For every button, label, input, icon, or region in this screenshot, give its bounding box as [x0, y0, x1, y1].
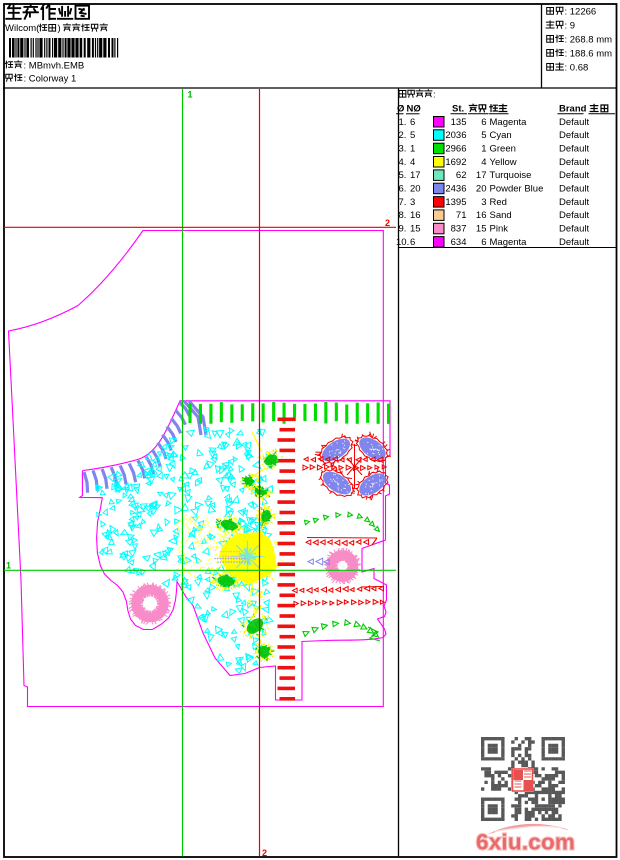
- svg-text:5: 5: [481, 130, 486, 141]
- svg-text:5.: 5.: [399, 170, 407, 181]
- svg-text:Magenta: Magenta: [490, 237, 528, 248]
- svg-text:1: 1: [410, 144, 415, 155]
- svg-text:Green: Green: [490, 144, 516, 155]
- svg-text:Default: Default: [559, 210, 589, 221]
- svg-text:Brand: Brand: [559, 104, 587, 115]
- svg-text:: 188.6 mm: : 188.6 mm: [565, 48, 613, 59]
- svg-text:15: 15: [410, 224, 421, 235]
- svg-text:17: 17: [476, 170, 487, 181]
- svg-text:: 268.8 mm: : 268.8 mm: [565, 34, 613, 45]
- svg-text:16: 16: [410, 210, 421, 221]
- svg-text:Yellow: Yellow: [490, 157, 517, 168]
- svg-text:Default: Default: [559, 224, 589, 235]
- svg-text:Default: Default: [559, 144, 589, 155]
- svg-text:2966: 2966: [445, 144, 466, 155]
- svg-text:1.: 1.: [399, 117, 407, 128]
- svg-text:Default: Default: [559, 157, 589, 168]
- svg-text:135: 135: [451, 117, 467, 128]
- svg-text:6.: 6.: [399, 184, 407, 195]
- svg-text:Default: Default: [559, 184, 589, 195]
- svg-text:1395: 1395: [445, 197, 466, 208]
- svg-text:10.: 10.: [396, 237, 409, 248]
- svg-text:Default: Default: [559, 197, 589, 208]
- svg-text:20: 20: [476, 184, 487, 195]
- svg-text:634: 634: [451, 237, 467, 248]
- svg-text:1: 1: [6, 561, 11, 571]
- svg-text:3: 3: [410, 197, 415, 208]
- svg-text:2436: 2436: [445, 184, 466, 195]
- svg-text:4: 4: [410, 157, 415, 168]
- svg-text:837: 837: [451, 224, 467, 235]
- svg-text:1: 1: [481, 144, 486, 155]
- svg-text:4: 4: [481, 157, 486, 168]
- svg-text:Default: Default: [559, 117, 589, 128]
- svg-text:17: 17: [410, 170, 421, 181]
- svg-text::: :: [433, 90, 436, 101]
- svg-text:2: 2: [385, 218, 390, 228]
- svg-text:Default: Default: [559, 170, 589, 181]
- svg-text:6: 6: [410, 117, 415, 128]
- svg-text:St.: St.: [452, 104, 464, 115]
- svg-text:15: 15: [476, 224, 487, 235]
- svg-text:9.: 9.: [399, 224, 407, 235]
- svg-text:Turquoise: Turquoise: [490, 170, 532, 181]
- svg-text:Wilcom(: Wilcom(: [5, 23, 40, 34]
- svg-text:8.: 8.: [399, 210, 407, 221]
- svg-text:Sand: Sand: [490, 210, 512, 221]
- svg-text:6: 6: [481, 117, 486, 128]
- svg-text:1: 1: [188, 90, 193, 100]
- svg-text:6: 6: [410, 237, 415, 248]
- svg-text:2.: 2.: [399, 130, 407, 141]
- svg-text:: 0.68: : 0.68: [565, 62, 589, 73]
- svg-text:: MBmvh.EMB: : MBmvh.EMB: [24, 61, 85, 72]
- svg-text:20: 20: [410, 184, 421, 195]
- svg-text:62: 62: [456, 170, 467, 181]
- svg-text:6xiu.com: 6xiu.com: [476, 830, 575, 855]
- svg-text:Ø: Ø: [397, 104, 404, 115]
- svg-text:7.: 7.: [399, 197, 407, 208]
- svg-text:Default: Default: [559, 130, 589, 141]
- svg-text:71: 71: [456, 210, 467, 221]
- svg-text:2: 2: [262, 848, 267, 858]
- svg-text:: 9: : 9: [565, 20, 576, 31]
- svg-text:1692: 1692: [445, 157, 466, 168]
- svg-text:3.: 3.: [399, 144, 407, 155]
- svg-text:NØ: NØ: [407, 104, 421, 115]
- svg-text:Magenta: Magenta: [490, 117, 528, 128]
- svg-text:6: 6: [481, 237, 486, 248]
- svg-text:3: 3: [481, 197, 486, 208]
- svg-text:2036: 2036: [445, 130, 466, 141]
- svg-text:Red: Red: [490, 197, 507, 208]
- svg-text:Cyan: Cyan: [490, 130, 512, 141]
- svg-text:Powder Blue: Powder Blue: [490, 184, 544, 195]
- svg-text:4.: 4.: [399, 157, 407, 168]
- svg-text:16: 16: [476, 210, 487, 221]
- svg-text:Pink: Pink: [490, 224, 509, 235]
- svg-text:: Colorway 1: : Colorway 1: [24, 74, 77, 85]
- svg-text:5: 5: [410, 130, 415, 141]
- svg-text:): ): [58, 23, 61, 34]
- svg-text:Default: Default: [559, 237, 589, 248]
- svg-text:: 12266: : 12266: [565, 6, 597, 17]
